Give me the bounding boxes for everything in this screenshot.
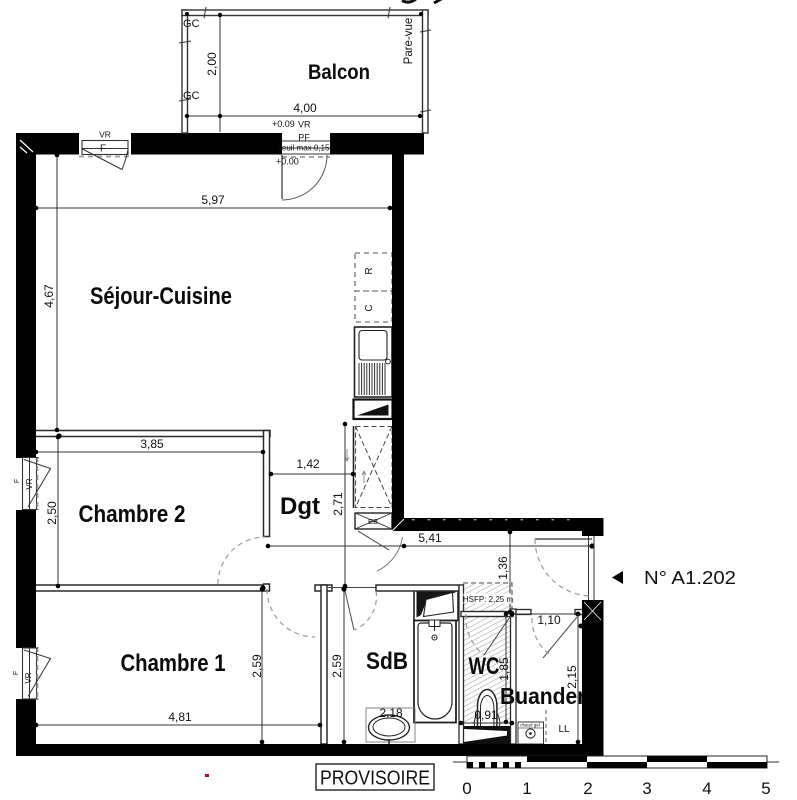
svg-text:5,97: 5,97: [201, 193, 225, 207]
svg-text:PF: PF: [298, 133, 310, 143]
svg-text:2,59: 2,59: [330, 654, 344, 678]
svg-text:5: 5: [761, 779, 770, 798]
svg-text:2: 2: [583, 779, 592, 798]
svg-text:F: F: [100, 144, 106, 155]
svg-text:VR: VR: [25, 478, 34, 489]
svg-text:3,85: 3,85: [140, 437, 164, 451]
svg-text:C: C: [364, 304, 375, 311]
svg-text:1,36: 1,36: [496, 556, 510, 580]
svg-text:5,41: 5,41: [418, 531, 442, 545]
svg-text:N° A1.202: N° A1.202: [644, 568, 736, 588]
svg-text:VR: VR: [99, 130, 111, 140]
svg-text:2,59: 2,59: [250, 654, 264, 678]
svg-text:chaud gel: chaud gel: [520, 723, 540, 728]
svg-text:4: 4: [702, 779, 711, 798]
svg-text:Seuil max 0,15: Seuil max 0,15: [277, 144, 330, 153]
svg-text:SdB: SdB: [366, 648, 408, 675]
svg-text:HSFP: 2,25 m: HSFP: 2,25 m: [463, 595, 514, 604]
svg-text:2,71: 2,71: [331, 492, 345, 516]
svg-text:+0.00: +0.00: [276, 157, 299, 167]
svg-text:4,67: 4,67: [42, 284, 56, 308]
svg-text:EB: EB: [368, 517, 378, 526]
svg-text:2,50: 2,50: [45, 501, 59, 525]
svg-text:Balcon: Balcon: [308, 61, 370, 84]
svg-text:VR: VR: [298, 120, 311, 130]
svg-text:LL: LL: [558, 724, 570, 735]
svg-text:3: 3: [642, 779, 651, 798]
svg-text:Pare-vue: Pare-vue: [403, 18, 415, 65]
svg-text:WC: WC: [469, 653, 500, 680]
svg-text:F: F: [13, 671, 20, 675]
svg-text:1,10: 1,10: [537, 613, 561, 627]
svg-text:4,81: 4,81: [168, 710, 192, 724]
svg-text:4,00: 4,00: [293, 101, 317, 115]
svg-text:GC: GC: [183, 90, 200, 102]
svg-text:PROVISOIRE: PROVISOIRE: [320, 768, 430, 790]
svg-text:1: 1: [522, 779, 531, 798]
svg-text:1,42: 1,42: [296, 457, 320, 471]
svg-text:F: F: [14, 479, 21, 483]
svg-text:2,00: 2,00: [205, 52, 219, 76]
svg-text:Chambre 2: Chambre 2: [79, 501, 186, 528]
svg-text:Séjour-Cuisine: Séjour-Cuisine: [90, 283, 232, 310]
svg-text:Dgt: Dgt: [280, 493, 320, 520]
svg-text:VR: VR: [24, 672, 33, 683]
svg-text:2,18: 2,18: [379, 706, 403, 720]
svg-text:2,15: 2,15: [565, 665, 579, 689]
svg-text:R: R: [364, 267, 375, 274]
svg-text:GC: GC: [183, 18, 200, 30]
svg-text:Chambre 1: Chambre 1: [121, 650, 226, 677]
svg-text:0,91: 0,91: [474, 708, 498, 722]
svg-text:1,85: 1,85: [497, 657, 511, 681]
svg-text:0: 0: [462, 779, 471, 798]
svg-text:+0.09: +0.09: [272, 119, 295, 129]
